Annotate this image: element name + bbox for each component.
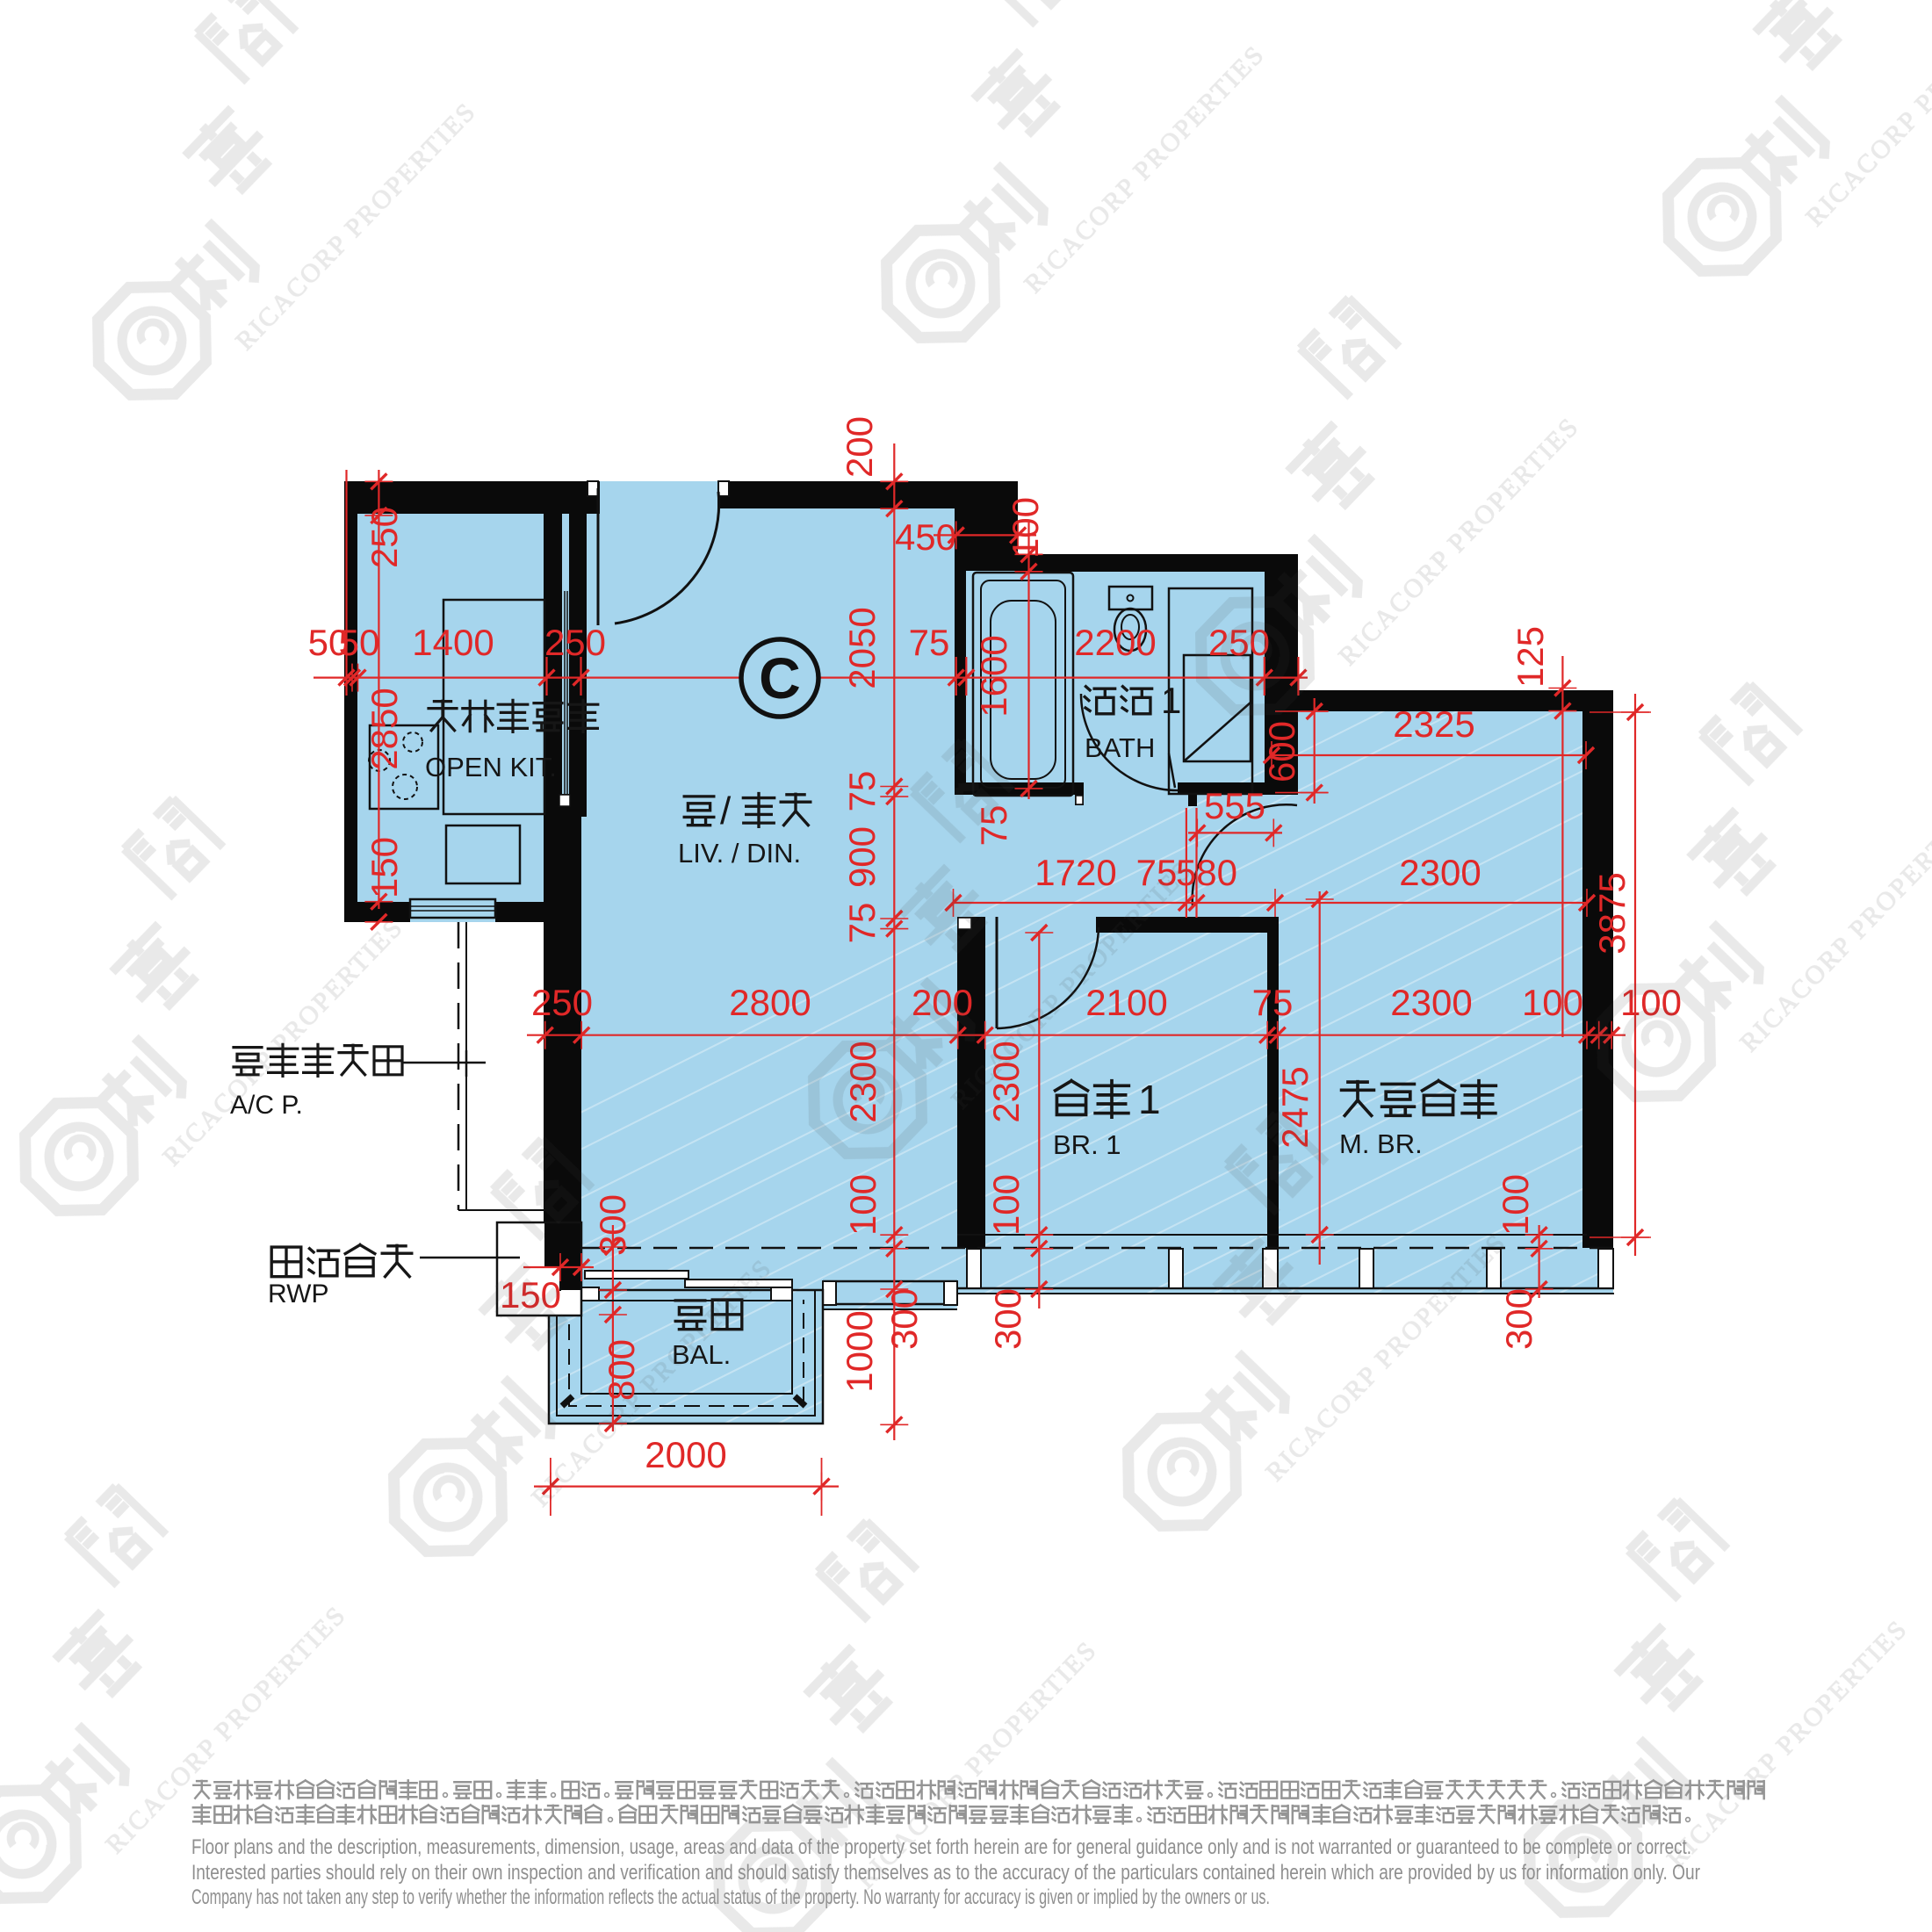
svg-text:125: 125 [1510,626,1551,688]
svg-text:100: 100 [985,1174,1027,1236]
svg-text:Floor plans and the descriptio: Floor plans and the description, measure… [191,1835,1691,1859]
svg-text:250: 250 [531,982,593,1023]
svg-text:600: 600 [1261,721,1302,782]
svg-text:50: 50 [339,622,380,663]
svg-text:75: 75 [841,771,883,812]
svg-text:1: 1 [1138,1077,1161,1122]
svg-text:BATH: BATH [1085,732,1155,763]
svg-text:2200: 2200 [1074,622,1156,663]
svg-text:555: 555 [1204,785,1265,826]
svg-text:2850: 2850 [364,688,405,769]
svg-text:2050: 2050 [841,607,883,688]
svg-text:75: 75 [973,805,1014,847]
svg-text:C: C [759,645,801,710]
svg-text:2325: 2325 [1393,703,1474,745]
svg-text:1400: 1400 [412,622,494,663]
svg-text:M. BR.: M. BR. [1339,1128,1423,1159]
svg-text:OPEN KIT.: OPEN KIT. [425,752,557,782]
svg-text:75: 75 [841,903,883,944]
svg-text:3875: 3875 [1591,872,1633,954]
svg-text:150: 150 [364,837,405,898]
svg-text:1: 1 [1161,680,1181,721]
svg-text:250: 250 [544,622,606,663]
svg-text:1000: 1000 [839,1310,880,1392]
svg-text:BR. 1: BR. 1 [1053,1129,1121,1160]
svg-text:2800: 2800 [729,982,811,1023]
svg-text:300: 300 [1498,1288,1539,1350]
svg-text:LIV. / DIN.: LIV. / DIN. [678,838,801,869]
svg-text:450: 450 [895,516,956,558]
svg-text:100: 100 [842,1174,883,1236]
svg-text:Interested parties should rely: Interested parties should rely on their … [191,1861,1700,1885]
svg-text:100: 100 [1005,497,1046,559]
svg-text:2300: 2300 [1390,982,1472,1023]
svg-text:200: 200 [839,416,880,478]
svg-text:RWP: RWP [268,1280,328,1308]
svg-text:75: 75 [1252,982,1294,1023]
svg-text:300: 300 [883,1288,925,1350]
svg-text:300: 300 [592,1194,633,1256]
svg-text:100: 100 [1495,1174,1536,1236]
svg-text:2000: 2000 [645,1434,726,1475]
svg-text:/: / [720,789,732,833]
svg-text:75: 75 [909,622,950,663]
svg-text:300: 300 [987,1288,1028,1350]
svg-text:2300: 2300 [1399,852,1481,893]
svg-text:Company has not taken any step: Company has not taken any step to verify… [191,1885,1270,1909]
svg-text:900: 900 [841,826,883,888]
svg-text:2100: 2100 [1085,982,1167,1023]
svg-text:250: 250 [364,507,405,568]
svg-text:1600: 1600 [973,635,1014,717]
svg-text:1720: 1720 [1034,852,1116,893]
svg-text:100: 100 [1522,982,1583,1023]
